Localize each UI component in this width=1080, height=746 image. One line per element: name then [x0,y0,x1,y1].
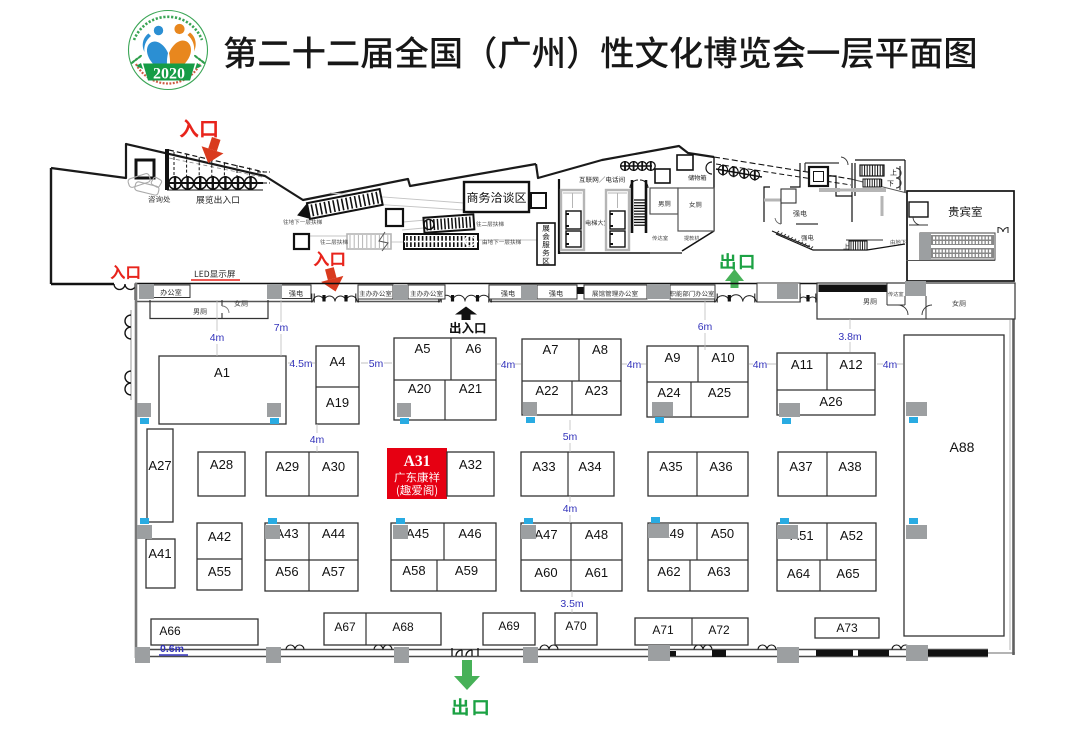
svg-text:A62: A62 [657,564,680,579]
svg-text:A35: A35 [659,459,682,474]
svg-text:A41: A41 [148,546,171,561]
svg-text:A23: A23 [585,383,608,398]
svg-text:A1: A1 [214,365,230,380]
svg-text:A58: A58 [402,563,425,578]
svg-text:A46: A46 [458,526,481,541]
svg-text:A63: A63 [707,564,730,579]
svg-text:A21: A21 [459,381,482,396]
svg-text:A26: A26 [819,394,842,409]
svg-text:A38: A38 [838,459,861,474]
svg-text:A67: A67 [334,620,356,634]
svg-text:4m: 4m [501,359,516,371]
svg-text:6m: 6m [698,321,713,333]
svg-text:A32: A32 [459,457,482,472]
svg-text:A44: A44 [322,526,345,541]
svg-text:A45: A45 [406,526,429,541]
svg-text:A68: A68 [392,620,414,634]
svg-text:A28: A28 [210,457,233,472]
svg-text:4m: 4m [627,359,642,371]
svg-text:A52: A52 [840,528,863,543]
svg-text:A73: A73 [836,621,858,635]
svg-text:A59: A59 [455,563,478,578]
svg-text:A6: A6 [466,341,482,356]
svg-text:A69: A69 [498,619,520,633]
svg-text:A72: A72 [708,623,730,637]
svg-text:A27: A27 [148,458,171,473]
svg-text:A56: A56 [275,564,298,579]
svg-text:A19: A19 [326,395,349,410]
svg-text:A22: A22 [535,383,558,398]
svg-text:A36: A36 [709,459,732,474]
svg-text:A66: A66 [159,624,181,638]
svg-text:2020: 2020 [153,66,185,83]
svg-text:0.6m: 0.6m [160,643,184,655]
svg-text:A4: A4 [330,354,346,369]
svg-text:4m: 4m [310,434,325,446]
svg-text:3.5m: 3.5m [560,598,584,610]
svg-text:A88: A88 [950,439,975,455]
svg-text:A47: A47 [534,527,557,542]
svg-text:5m: 5m [369,358,384,370]
svg-text:4m: 4m [563,503,578,515]
svg-text:A11: A11 [791,357,813,372]
svg-text:A8: A8 [592,342,608,357]
svg-text:4m: 4m [883,359,898,371]
svg-text:A31: A31 [404,453,431,470]
svg-text:A65: A65 [836,566,859,581]
svg-text:A9: A9 [665,350,681,365]
svg-text:A29: A29 [276,459,299,474]
svg-text:A57: A57 [322,564,345,579]
svg-text:A5: A5 [415,341,431,356]
svg-text:A70: A70 [565,619,587,633]
svg-text:A61: A61 [585,565,608,580]
svg-text:A71: A71 [652,623,674,637]
svg-text:A12: A12 [839,357,862,372]
svg-text:A25: A25 [708,385,731,400]
svg-text:A30: A30 [322,459,345,474]
svg-text:A64: A64 [787,566,810,581]
svg-text:4m: 4m [210,332,225,344]
svg-text:A50: A50 [711,526,734,541]
svg-text:A42: A42 [208,529,231,544]
svg-text:A7: A7 [543,342,559,357]
svg-text:A60: A60 [534,565,557,580]
svg-text:7m: 7m [274,322,289,334]
svg-text:5m: 5m [563,431,578,443]
svg-text:A48: A48 [585,527,608,542]
svg-text:A55: A55 [208,564,231,579]
svg-text:A37: A37 [789,459,812,474]
svg-text:A24: A24 [657,385,680,400]
svg-text:A20: A20 [408,381,431,396]
svg-text:A34: A34 [578,459,601,474]
svg-text:4m: 4m [753,359,768,371]
svg-text:A33: A33 [532,459,555,474]
svg-text:A10: A10 [711,350,734,365]
svg-text:3.8m: 3.8m [838,331,862,343]
svg-text:4.5m: 4.5m [289,358,313,370]
